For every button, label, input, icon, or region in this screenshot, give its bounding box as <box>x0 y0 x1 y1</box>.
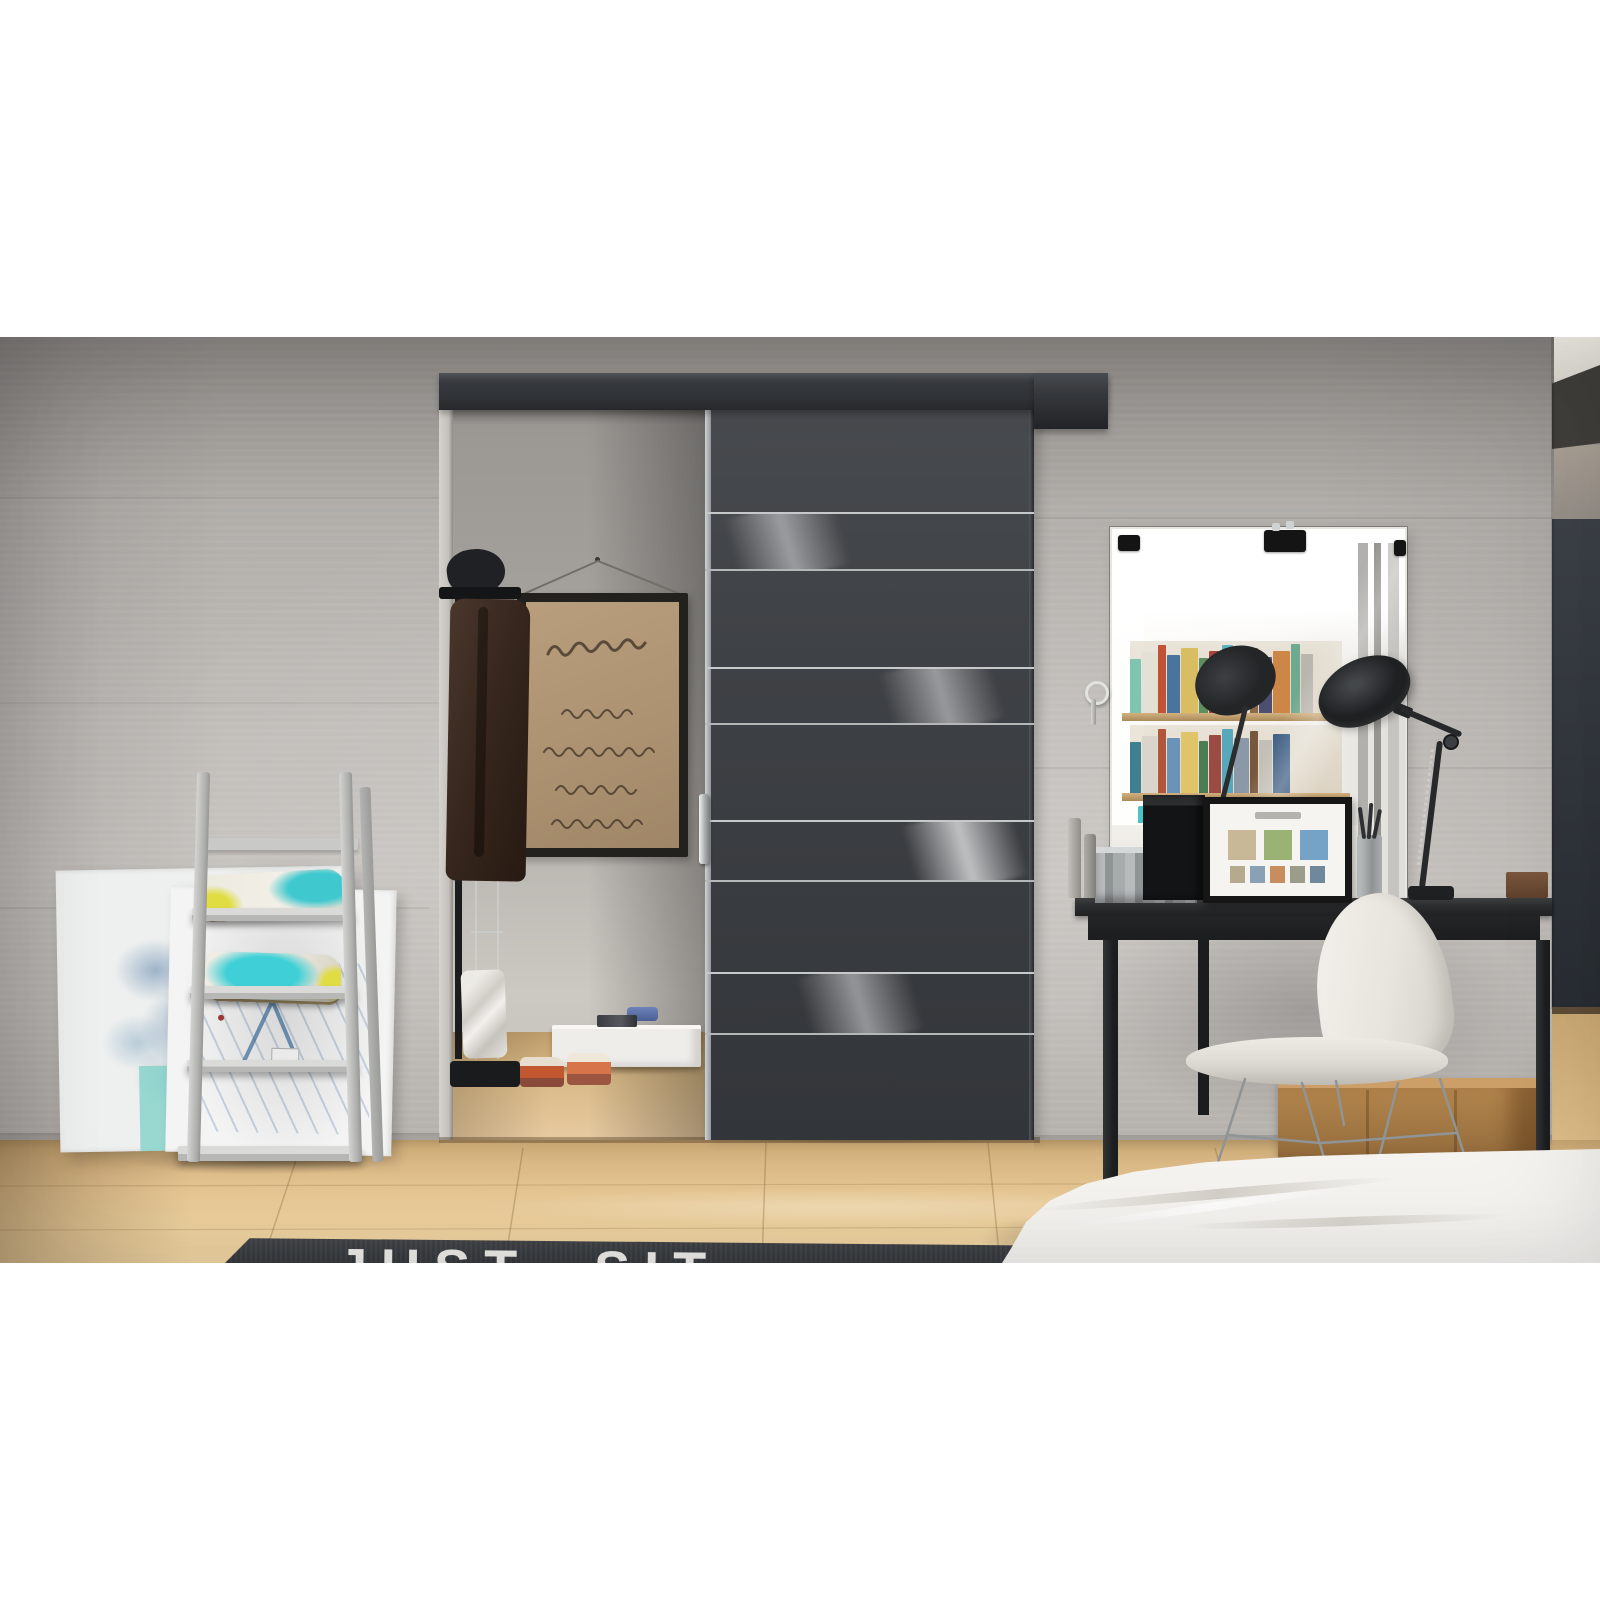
sliding-door-rail <box>439 373 1108 410</box>
shoe-rack-bar <box>471 931 503 933</box>
collage-thumb <box>1230 866 1245 883</box>
mirror-clip-right <box>1394 540 1406 556</box>
dark-wall-panel <box>1552 519 1600 1009</box>
wall-joint <box>0 702 439 704</box>
coat-hook-bar <box>439 587 521 599</box>
collage-thumb <box>1310 866 1325 883</box>
desk-leg-front-left <box>1103 940 1118 1188</box>
ladder-shelf-1 <box>192 908 354 921</box>
collage-thumb <box>1250 866 1265 883</box>
duvet-fold <box>1181 1212 1510 1232</box>
white-bag <box>460 969 507 1058</box>
espadrille-shoe <box>567 1053 611 1085</box>
ladder-shelf-3 <box>187 1060 358 1072</box>
wall-joint <box>0 497 439 499</box>
desk-lamp-base <box>1408 886 1454 900</box>
wall-hook-ring <box>1085 681 1109 705</box>
collage-thumb <box>1228 830 1256 860</box>
framed-photo-collage <box>1203 797 1352 903</box>
coat-rack-base <box>450 1061 520 1087</box>
small-brown-box <box>1506 872 1548 898</box>
door-handle <box>699 794 709 864</box>
rail-end-cap <box>1034 373 1108 429</box>
brush-cup <box>1357 835 1382 898</box>
closet-top-shadow <box>439 409 709 425</box>
door-glass-stripe-4 <box>705 972 1034 1035</box>
mirror-clip-middle <box>1264 530 1306 552</box>
perfume-bottle <box>1068 818 1081 898</box>
door-glass-stripe-1 <box>705 512 1034 571</box>
door-glass-stripe-3 <box>705 820 1034 882</box>
desk-lamp-joint <box>1443 734 1459 750</box>
ladder-top-crossbar <box>198 838 358 850</box>
hallway-baseboard <box>1552 1007 1600 1014</box>
wall-hook-stem <box>1091 699 1096 725</box>
hanging-coat <box>446 598 531 881</box>
collage-thumb <box>1300 830 1328 860</box>
collage-thumb <box>1264 830 1292 860</box>
poster-script-lines <box>526 602 679 848</box>
collage-thumbnails-row <box>1226 866 1329 883</box>
script-poster-frame <box>517 593 688 857</box>
closet-niche <box>439 409 709 1140</box>
door-glass-stripe-2 <box>705 667 1034 725</box>
mirror-clip-detail <box>1272 523 1280 531</box>
hallway-wall <box>1554 445 1600 521</box>
interior-photo: JUST SIT <box>0 337 1600 1263</box>
poster-paper <box>526 602 679 848</box>
mirror-clip-left <box>1118 535 1140 551</box>
wall-joint <box>1034 517 1552 519</box>
ladder-shelf-2 <box>190 986 356 999</box>
collage-logo-mark <box>1255 812 1301 819</box>
espadrille-shoe <box>520 1057 564 1087</box>
collage-thumb <box>1270 866 1285 883</box>
black-speaker-box <box>1143 795 1205 900</box>
desk-leg-front-right <box>1536 940 1550 1160</box>
desk-apron <box>1088 916 1540 940</box>
screenshot-canvas: JUST SIT <box>0 0 1600 1600</box>
collage-thumb <box>1290 866 1305 883</box>
ladder-shelf-4 <box>178 1146 362 1161</box>
rug-text: JUST SIT <box>337 1241 721 1263</box>
mirror-clip-detail <box>1286 521 1294 529</box>
dark-case-on-box <box>597 1015 637 1027</box>
sliding-door-panel <box>705 409 1034 1140</box>
collage-photos-row <box>1224 830 1331 860</box>
perfume-bottle <box>1084 834 1096 898</box>
